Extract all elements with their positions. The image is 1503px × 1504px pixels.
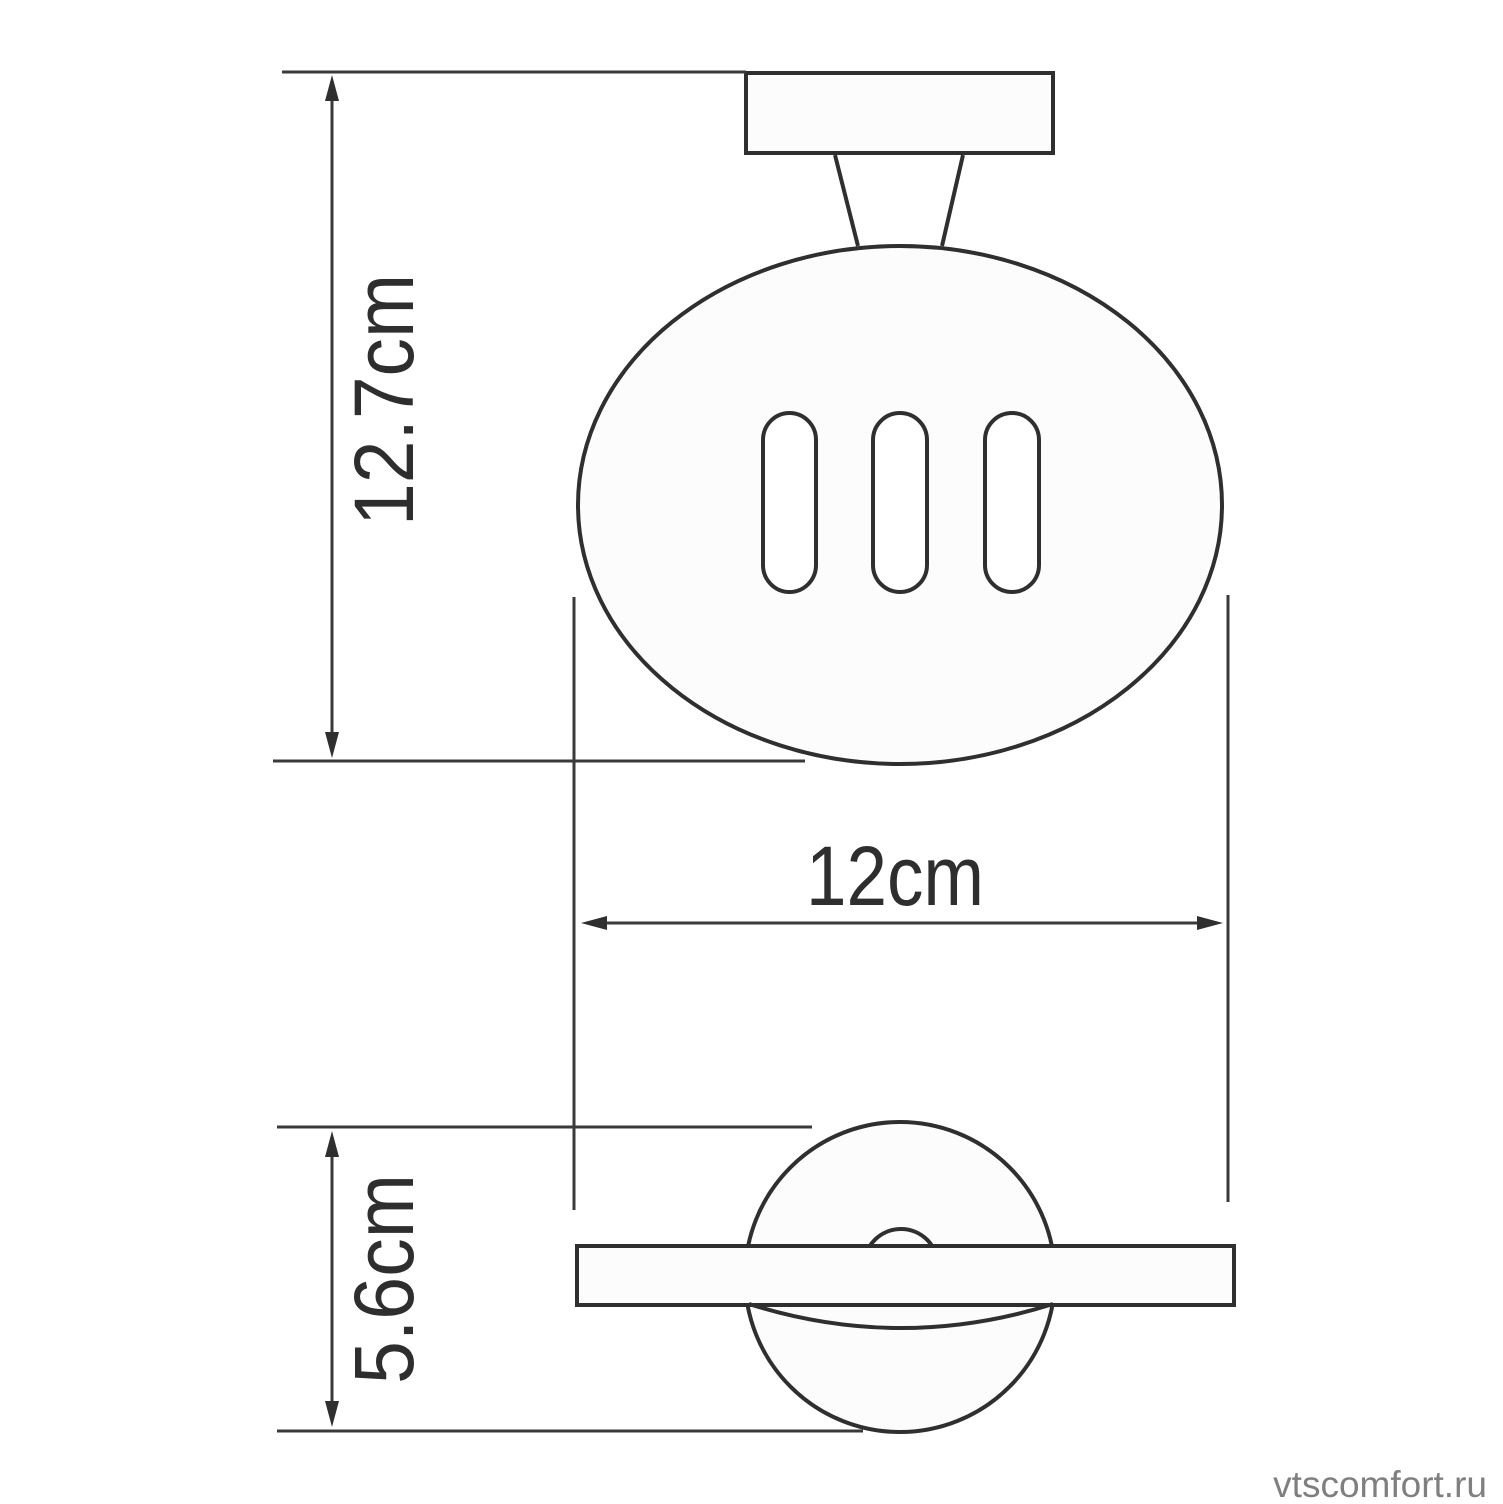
dimension-depth-label: 5.6cm bbox=[337, 1174, 431, 1384]
arrowhead-left-icon bbox=[581, 916, 607, 930]
arrowhead-down-icon bbox=[325, 732, 339, 758]
soap-dish-dimension-drawing: 12.7cm 12cm 5.6cm vtscomfort.ru bbox=[0, 0, 1503, 1504]
drain-slot bbox=[763, 413, 816, 592]
arrowhead-down-icon bbox=[325, 1401, 339, 1427]
drain-slot bbox=[985, 413, 1039, 592]
site-watermark: vtscomfort.ru bbox=[1273, 1464, 1487, 1504]
arrowhead-up-icon bbox=[325, 1131, 339, 1157]
bracket-stem-right-edge bbox=[942, 155, 963, 246]
arrowhead-right-icon bbox=[1197, 916, 1223, 930]
dimension-drawing-canvas: 12.7cm 12cm 5.6cm vtscomfort.ru bbox=[0, 0, 1503, 1504]
arrowhead-up-icon bbox=[325, 75, 339, 101]
bracket-stem-left-edge bbox=[835, 155, 858, 246]
side-view bbox=[577, 1122, 1234, 1432]
drain-slot bbox=[873, 413, 927, 592]
front-view bbox=[578, 73, 1222, 764]
wall-bracket-plate bbox=[746, 73, 1053, 153]
dish-profile-bar bbox=[577, 1246, 1234, 1305]
dimension-height-label: 12.7cm bbox=[337, 274, 431, 526]
dimension-width-label: 12cm bbox=[806, 829, 984, 923]
